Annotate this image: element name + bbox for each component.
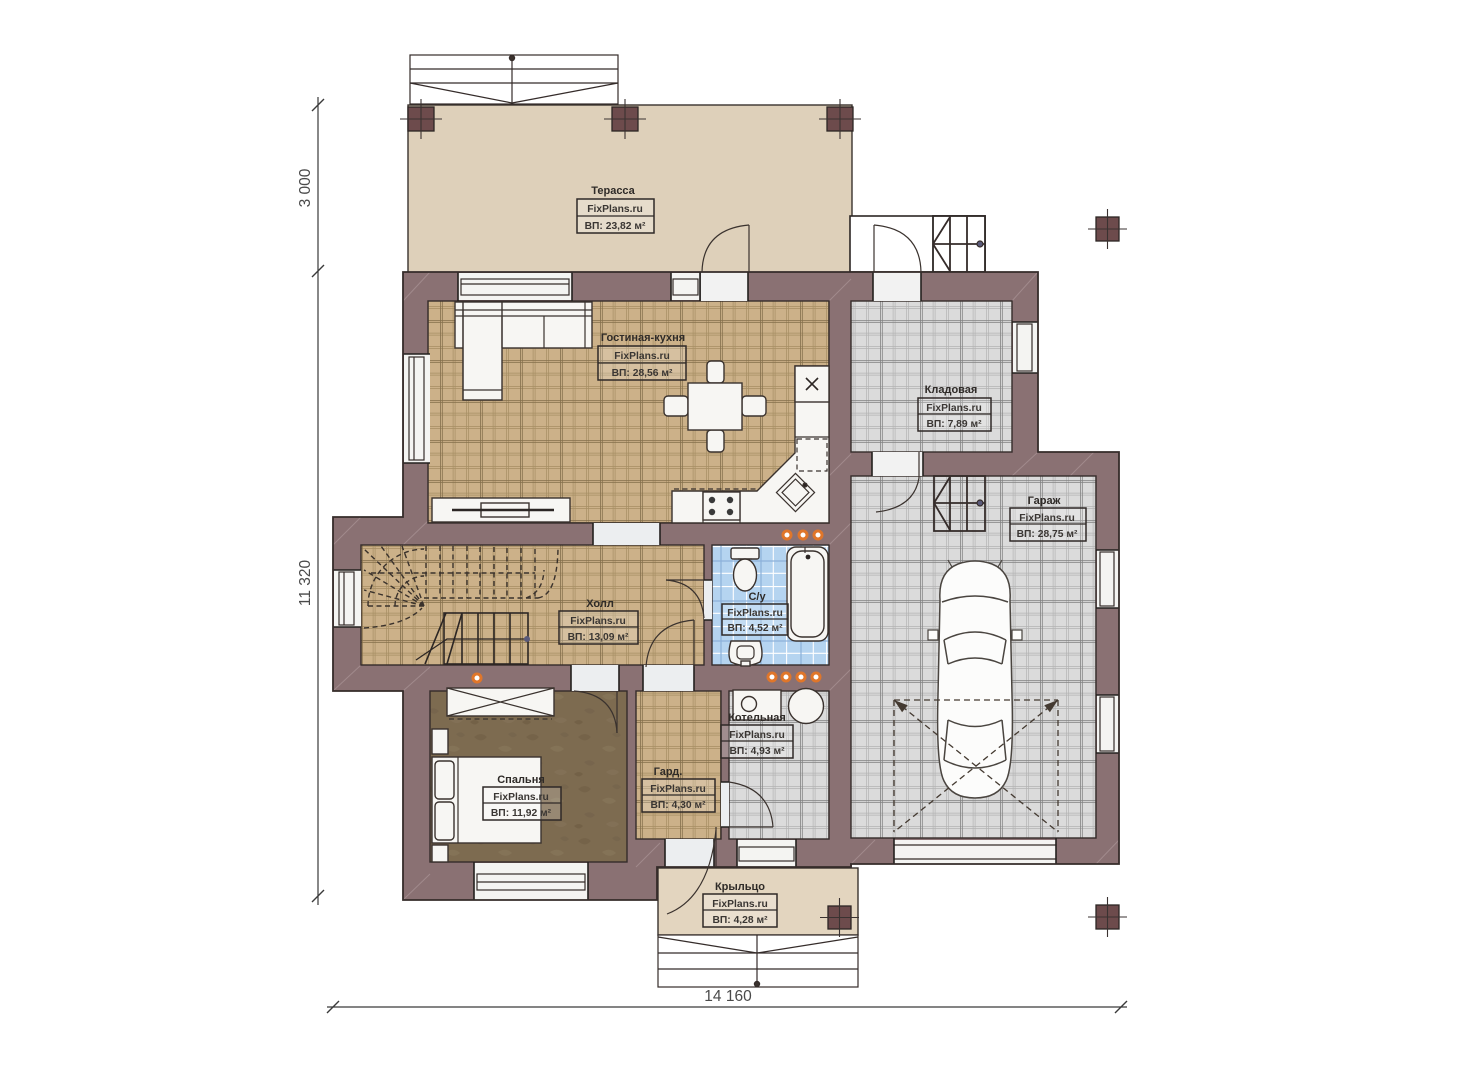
svg-text:FixPlans.ru: FixPlans.ru	[650, 784, 706, 795]
svg-text:FixPlans.ru: FixPlans.ru	[570, 616, 626, 627]
svg-text:Котельная: Котельная	[728, 712, 786, 724]
svg-text:Кладовая: Кладовая	[925, 384, 978, 396]
svg-text:ВП: 28,56 м²: ВП: 28,56 м²	[612, 368, 673, 379]
svg-text:Терасса: Терасса	[591, 185, 635, 197]
svg-text:ВП: 4,93 м²: ВП: 4,93 м²	[729, 746, 785, 757]
svg-text:ВП: 28,75 м²: ВП: 28,75 м²	[1017, 529, 1078, 540]
svg-text:FixPlans.ru: FixPlans.ru	[587, 204, 643, 215]
svg-text:ВП: 7,89 м²: ВП: 7,89 м²	[926, 419, 982, 430]
svg-text:FixPlans.ru: FixPlans.ru	[727, 608, 783, 619]
svg-text:ВП: 4,28 м²: ВП: 4,28 м²	[712, 915, 768, 926]
svg-text:14 160: 14 160	[704, 988, 752, 1005]
svg-text:ВП: 23,82 м²: ВП: 23,82 м²	[585, 221, 646, 232]
svg-text:С/у: С/у	[748, 591, 766, 603]
svg-text:Гостиная-кухня: Гостиная-кухня	[601, 332, 685, 344]
svg-text:FixPlans.ru: FixPlans.ru	[729, 730, 785, 741]
svg-text:ВП: 4,30 м²: ВП: 4,30 м²	[650, 800, 706, 811]
svg-text:Холл: Холл	[586, 598, 614, 610]
svg-text:FixPlans.ru: FixPlans.ru	[712, 899, 768, 910]
svg-text:ВП: 11,92 м²: ВП: 11,92 м²	[491, 808, 552, 819]
svg-text:FixPlans.ru: FixPlans.ru	[614, 351, 670, 362]
svg-text:FixPlans.ru: FixPlans.ru	[926, 403, 982, 414]
svg-text:11 320: 11 320	[297, 559, 314, 606]
svg-text:3 000: 3 000	[297, 168, 314, 207]
svg-text:ВП: 13,09 м²: ВП: 13,09 м²	[568, 632, 629, 643]
svg-text:FixPlans.ru: FixPlans.ru	[1019, 513, 1075, 524]
svg-text:Гард.: Гард.	[654, 766, 683, 778]
svg-text:Спальня: Спальня	[497, 774, 545, 786]
svg-text:ВП: 4,52 м²: ВП: 4,52 м²	[727, 623, 783, 634]
svg-text:Гараж: Гараж	[1028, 495, 1061, 507]
svg-text:Крыльцо: Крыльцо	[715, 881, 765, 893]
svg-text:FixPlans.ru: FixPlans.ru	[493, 792, 549, 803]
